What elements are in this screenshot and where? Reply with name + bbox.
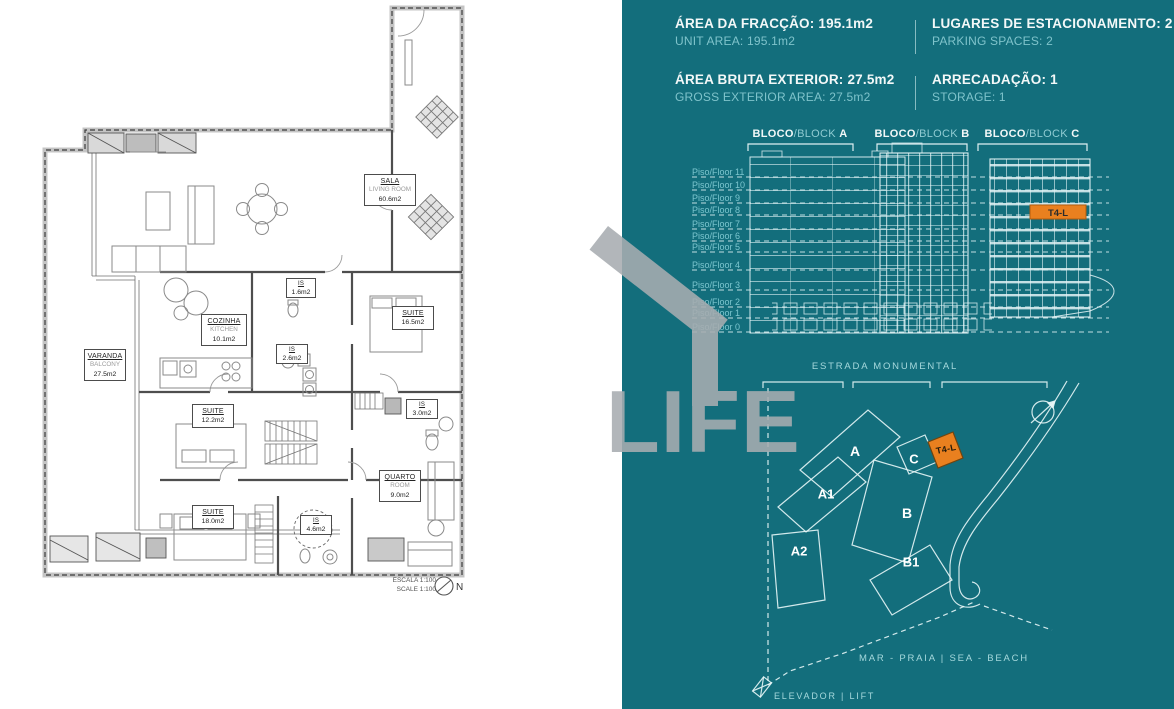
street-label: ESTRADA MONUMENTAL [770,361,1000,372]
room-label-is1: IS 1.6m2 [286,278,316,298]
svg-text:Piso/Floor 5: Piso/Floor 5 [692,242,740,252]
building-b-outline [852,460,932,563]
svg-text:Piso/Floor 4: Piso/Floor 4 [692,260,740,270]
document-page: N SALA LIVING ROOM 60.6m2 COZINHA KITCHE… [0,0,1174,709]
street-brackets [763,382,1047,388]
svg-text:Piso/Floor 7: Piso/Floor 7 [692,219,740,229]
north-letter: N [456,582,463,593]
site-plan: ESTRADA MONUMENTAL MAR - PRAIA | SEA - B… [622,355,1174,709]
header-storage: ARRECADAÇÃO: 1 STORAGE: 1 [932,72,1058,104]
room-label-suite1: SUITE 16.5m2 [392,306,434,330]
svg-text:Piso/Floor 10: Piso/Floor 10 [692,180,745,190]
elevator-icon [753,677,772,697]
block-brackets [748,144,1087,151]
header-area-bruta: ÁREA BRUTA EXTERIOR: 27.5m2 GROSS EXTERI… [675,72,894,104]
header-parking: LUGARES DE ESTACIONAMENTO: 2 PARKING SPA… [932,16,1173,48]
room-label-suite2: SUITE 12.2m2 [192,404,234,428]
building-c-label: C [909,452,918,467]
header-area-fraccao: ÁREA DA FRACÇÃO: 195.1m2 UNIT AREA: 195.… [675,16,873,48]
building-a2-outline [772,530,825,608]
road-inner [950,381,1067,607]
room-label-is4: IS 4.6m2 [300,515,332,535]
svg-text:Piso/Floor 6: Piso/Floor 6 [692,231,740,241]
elevation-buildings [750,143,1114,333]
floor-plan: N SALA LIVING ROOM 60.6m2 COZINHA KITCHE… [0,0,622,709]
building-elevation: BLOCO/BLOCK A BLOCO/BLOCK B BLOCO/BLOCK … [622,125,1174,355]
room-label-cozinha: COZINHA KITCHEN 10.1m2 [201,314,247,346]
info-panel: ÁREA DA FRACÇÃO: 195.1m2 UNIT AREA: 195.… [622,0,1174,709]
room-label-varanda: VARANDA BALCONY 27.5m2 [84,349,126,381]
svg-text:Piso/Floor 8: Piso/Floor 8 [692,205,740,215]
building-b1-label: B1 [903,555,920,570]
scale-note: ESCALA 1:100 SCALE 1:100 [384,576,436,595]
road-outer [959,383,1079,599]
svg-text:Piso/Floor 0: Piso/Floor 0 [692,322,740,332]
header-divider-2 [915,76,916,110]
room-label-suite3: SUITE 18.0m2 [192,505,234,529]
scale-en: SCALE 1:100 [384,585,436,594]
floor-labels: Piso/Floor 11 Piso/Floor 10 Piso/Floor 9… [692,167,745,332]
scale-pt: ESCALA 1:100 [384,576,436,585]
svg-text:Piso/Floor 11: Piso/Floor 11 [692,167,744,177]
building-a1-label: A1 [818,487,835,502]
svg-text:Piso/Floor 3: Piso/Floor 3 [692,280,740,290]
room-label-is3: IS 3.0m2 [406,399,438,419]
building-a2-label: A2 [791,544,808,559]
elevation-drawing: T4-L Piso/Floor 11 Piso/Floor 10 Piso/Fl… [622,125,1174,355]
sea-label: MAR - PRAIA | SEA - BEACH [824,653,1064,664]
room-label-quarto: QUARTO ROOM 9.0m2 [379,470,421,502]
building-b-label: B [902,505,912,521]
svg-text:Piso/Floor 2: Piso/Floor 2 [692,297,740,307]
t4l-elevation-label: T4-L [1048,208,1068,219]
north-compass-icon: N [435,577,463,595]
svg-text:Piso/Floor 9: Piso/Floor 9 [692,193,740,203]
room-label-is2: IS 2.6m2 [276,344,308,364]
t4l-elevation-highlight: T4-L [1030,205,1086,219]
room-label-sala: SALA LIVING ROOM 60.6m2 [364,174,416,206]
svg-text:Piso/Floor 1: Piso/Floor 1 [692,308,740,318]
shoreline-dashed [768,602,1052,685]
building-a-label: A [850,443,860,459]
header-divider-1 [915,20,916,54]
lift-label: ELEVADOR | LIFT [774,691,875,701]
